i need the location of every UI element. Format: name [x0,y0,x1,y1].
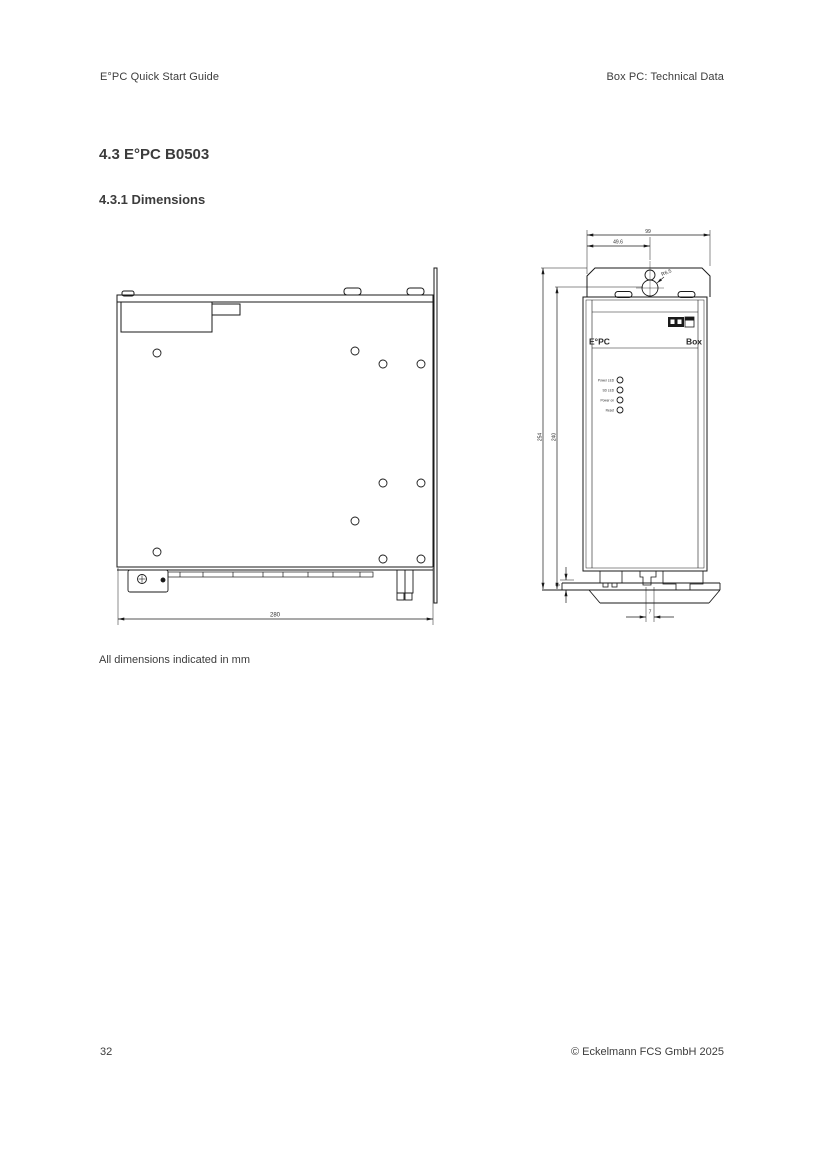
led-indicators [617,377,623,413]
manual-page: E°PC Quick Start Guide Box PC: Technical… [0,0,827,1169]
led-label: Power on [601,398,615,402]
keyhole-icon [636,261,664,296]
power-led-icon [617,377,623,383]
reset-icon [617,407,623,413]
dim-width-280: 280 [118,568,433,625]
power-on-led-icon [617,397,623,403]
model-text: Box [686,337,702,347]
led-label: SD LED [602,388,614,392]
led-label: Power LED [598,378,615,382]
header-left: E°PC Quick Start Guide [100,71,219,83]
brand-text: E°PC [589,337,610,347]
section-heading: 4.3 E°PC B0503 [99,146,209,163]
bottom-connector [397,570,413,600]
dim-label-254: 254 [538,433,544,442]
brand-logo-icon [668,317,694,327]
dim-label-49-6: 49.6 [613,240,623,246]
footer-page-number: 32 [100,1046,112,1058]
side-flange [434,268,437,603]
figure-caption: All dimensions indicated in mm [99,654,250,666]
sd-led-icon [617,387,623,393]
side-view [117,268,437,603]
dim-label-240: 240 [552,433,558,442]
screw-head-icon [344,288,361,295]
bottom-bracket [542,583,720,603]
dimensions-figure: 280 R6.5 [98,227,730,644]
screw-head-icon [407,288,424,295]
mounting-holes [153,347,425,563]
earth-terminal [128,570,168,592]
dim-label-7: 7 [649,610,652,616]
front-view: R6.5 E°PC Bo [542,261,720,603]
front-view-dimensions: 99 49.6 254 240 8 [538,229,711,622]
dim-label-280: 280 [270,613,281,619]
dim-label-8: 8 [556,583,562,586]
keyhole-radius-label: R6.5 [661,268,673,278]
led-label: Reset [606,408,614,412]
front-bottom-connectors [600,571,703,590]
header-right: Box PC: Technical Data [606,71,724,83]
subsection-heading: 4.3.1 Dimensions [99,192,205,207]
dimension-drawing: 280 R6.5 [98,227,730,644]
dim-label-99: 99 [645,229,651,235]
mounting-plate-outline [117,302,433,567]
footer-copyright: © Eckelmann FCS GmbH 2025 [571,1046,724,1058]
